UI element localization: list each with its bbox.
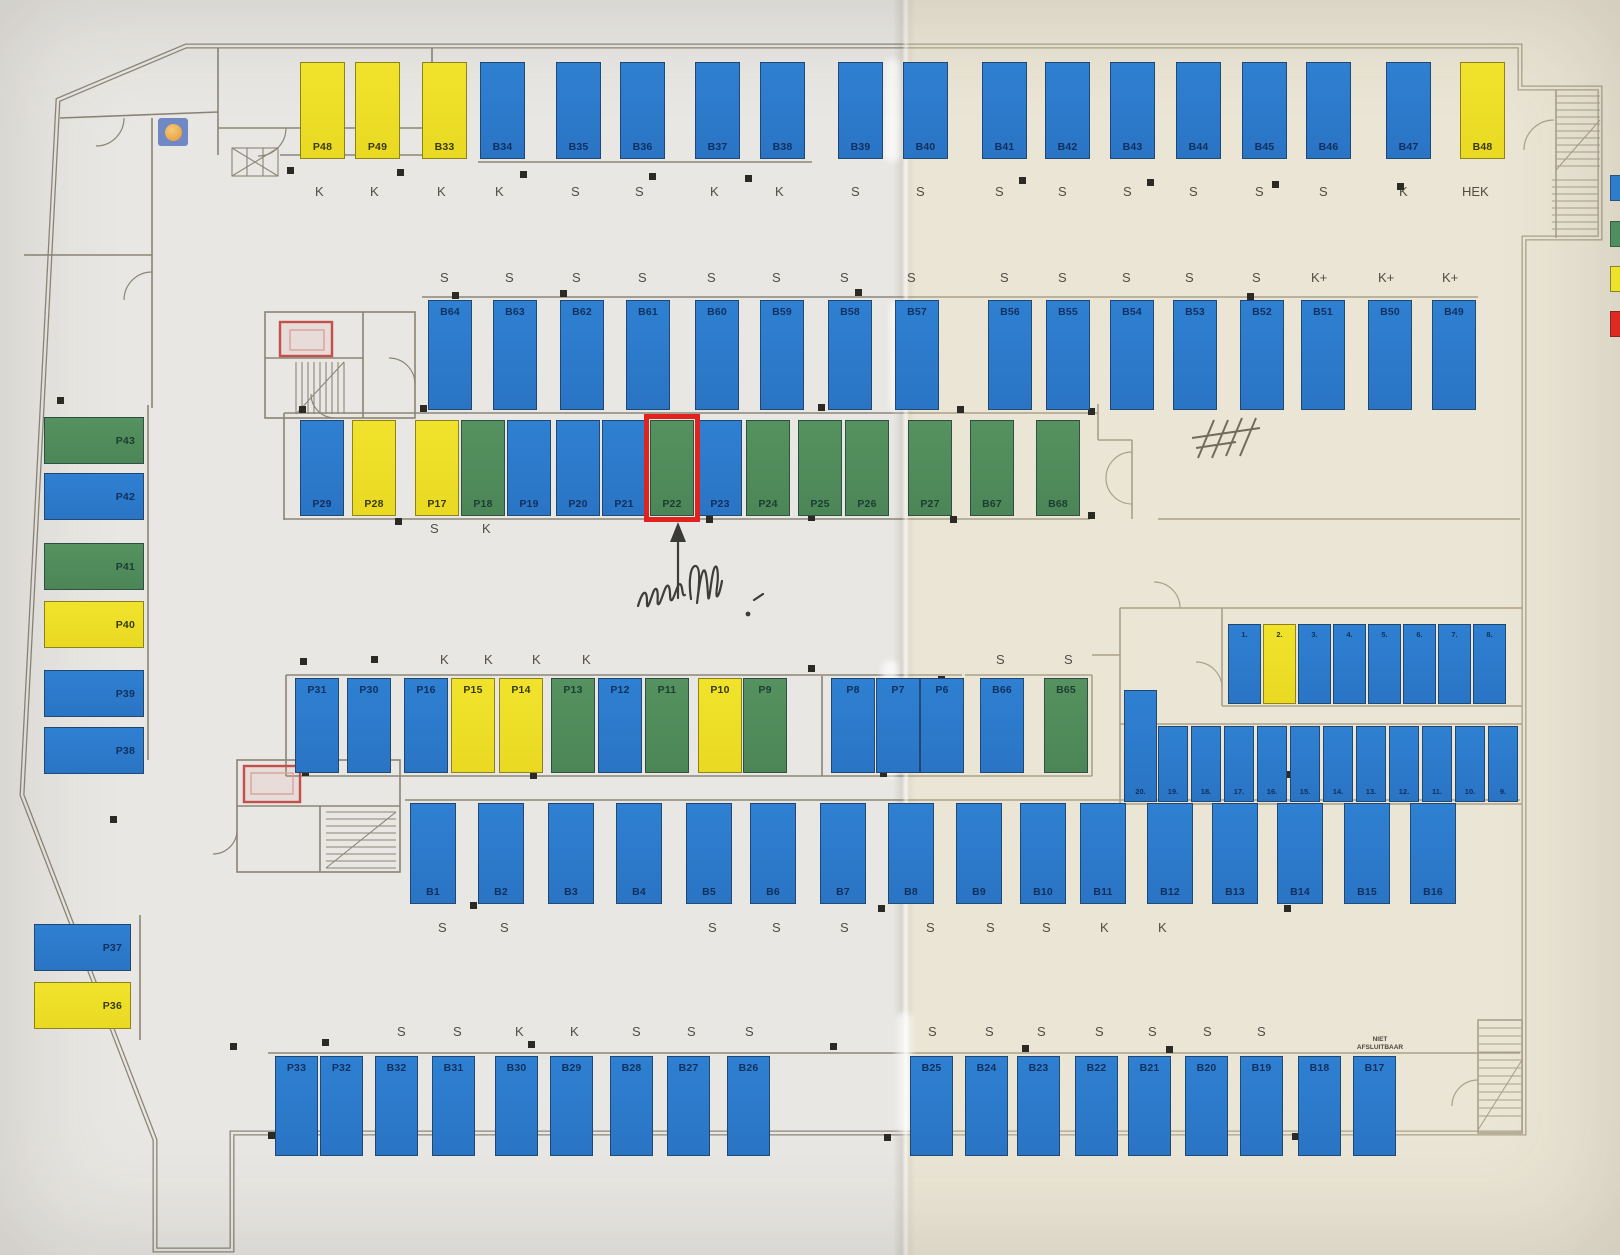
floor-plan-photo: P48P49B33B34B35B36B37B38B39B40B41B42B43B… [0,0,1620,1255]
handwritten-annotation-arrow [0,0,1620,1255]
handwritten-scribble [638,566,722,606]
